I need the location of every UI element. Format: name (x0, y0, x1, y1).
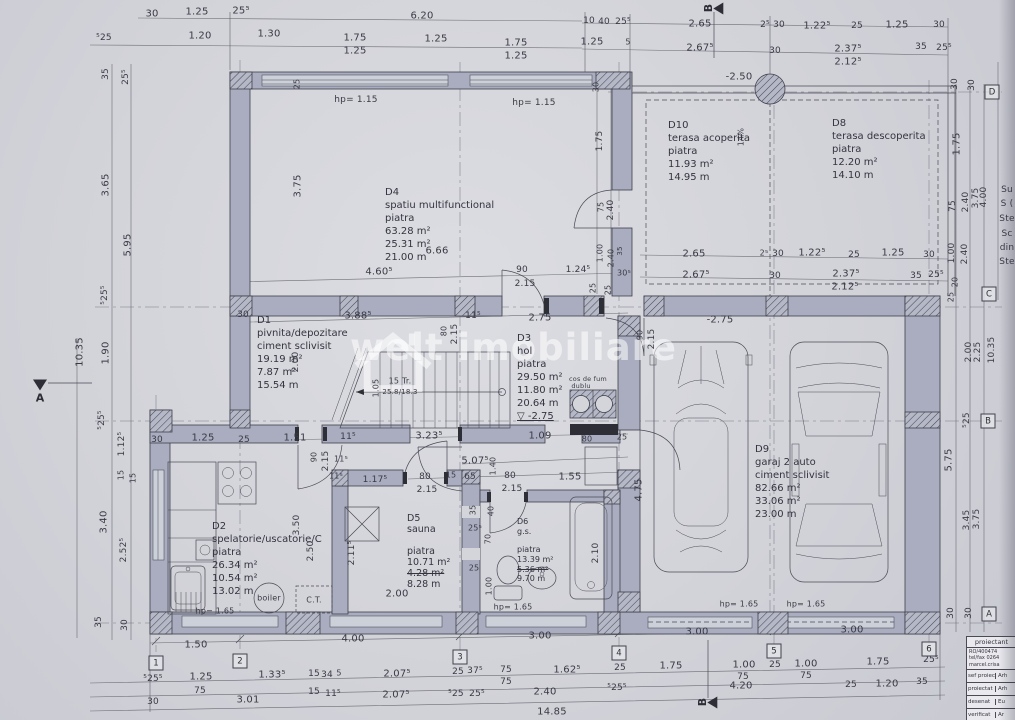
room-label-line: 25.31 m² (385, 238, 494, 251)
section-marker-triangle-icon (33, 380, 47, 391)
dim-label: 90 (310, 452, 319, 463)
room-label-line: ciment sclivisit (755, 469, 829, 482)
dim-label: 2.37⁵ (832, 269, 859, 280)
dim-label: 1.05 (372, 379, 381, 398)
dim-label: 35 (101, 68, 111, 80)
dim-label: 3.65 (101, 173, 112, 196)
dim-label: 3.45 (962, 510, 972, 531)
dim-label: 30 (964, 607, 974, 619)
dim-label: 15 (129, 473, 138, 484)
dim-label: 30 (769, 271, 781, 281)
dim-label: 25⁵ (928, 270, 944, 280)
margin-note: Ste (999, 257, 1014, 267)
dim-label: 25 (851, 21, 863, 31)
room-label-line: sauna (407, 525, 450, 536)
dim-label: 3.40 (99, 510, 110, 533)
dim-label: 3.75 (293, 174, 304, 197)
dim-label: -2.75 (707, 315, 734, 326)
room-label-line: piatra (668, 145, 750, 158)
room-label-line: 13.39 m² (517, 555, 553, 565)
margin-note: Sc (1001, 229, 1012, 239)
dim-label: 80 (504, 471, 516, 481)
dim-label: 2.15 (502, 484, 523, 494)
dim-label: 2.65 (688, 19, 711, 30)
dim-label: 1.25 (189, 672, 212, 683)
room-label-line: 63.28 m² (385, 225, 494, 238)
room-label-line: D9 (755, 443, 829, 456)
dim-label: 1.00 (947, 243, 957, 264)
dim-label: 30 (773, 20, 785, 30)
dim-label: 37⁵ (467, 666, 483, 676)
dim-label: 2.40 (607, 249, 616, 268)
dim-label: 80 (440, 326, 449, 337)
dim-label: 1.25 (424, 34, 447, 45)
dim-label: ⁵25 (96, 33, 112, 43)
dim-label: 20 (951, 277, 960, 288)
dim-label: 1.25 (580, 37, 603, 48)
dim-label: 30 (967, 79, 977, 91)
room-label-D4: D4spatiu multifunctionalpiatra63.28 m²25… (385, 186, 494, 264)
dim-label: 90 (516, 265, 528, 275)
dim-label: 35 (916, 677, 928, 687)
dim-label: hp= 1.15 (334, 95, 377, 105)
dim-label: 3.00 (685, 627, 708, 638)
room-label-line: piatra (212, 546, 322, 559)
section-marker-B: B (698, 696, 717, 709)
dim-label: 15 (446, 471, 457, 480)
dim-label: 11⁵ (325, 689, 341, 699)
dim-label: 2.40 (533, 687, 556, 698)
dim-label: 25 (617, 433, 628, 442)
dim-label: 4.00 (341, 634, 364, 645)
dim-label: 1.33⁵ (258, 670, 285, 681)
dim-label: 2.07⁵ (382, 690, 409, 701)
room-label-line: 11.93 m² (668, 158, 750, 171)
room-label-line: D8 (832, 117, 926, 130)
dim-label: 25⁵ (121, 69, 131, 85)
dim-label: 15 (117, 470, 126, 481)
title-block-row-key: verificat (967, 712, 996, 718)
grid-axis-1: 1 (149, 656, 164, 671)
room-label-line: piatra (385, 212, 494, 225)
dim-label: 2⁵ (760, 20, 770, 30)
room-label-line: 12.20 m² (832, 156, 926, 169)
dim-label: 15 Tr. (389, 377, 412, 386)
dim-label: 75 (500, 677, 512, 687)
margin-note: Su (1001, 185, 1013, 195)
room-label-line: D2 (212, 520, 322, 533)
dim-label: 1.00 (485, 577, 494, 596)
dim-label: 25 (845, 680, 857, 690)
dim-label: 2.75 (528, 313, 551, 324)
dim-label: 30 (933, 20, 945, 30)
dim-label: 15 (308, 687, 320, 697)
dim-label: 30⁵ (617, 269, 631, 278)
dim-label: 2.40 (961, 192, 971, 213)
dim-label: 25 (452, 667, 464, 677)
margin-note: din (1000, 243, 1015, 253)
grid-axis-4: 4 (612, 646, 627, 661)
dim-label: 1.75 (659, 661, 682, 672)
dim-label: 1.22⁵ (798, 248, 825, 259)
room-label-D1: D1pivnita/depozitareciment sclivisit19.1… (257, 314, 348, 392)
section-marker-triangle-icon (708, 696, 718, 708)
dim-label: 4.20 (729, 681, 752, 692)
room-label-line: pivnita/depozitare (257, 327, 348, 340)
dim-label: 1.17⁵ (363, 475, 388, 485)
dim-label: hp= 1.65 (787, 600, 826, 609)
dim-label: 2.12⁵ (834, 57, 861, 68)
dim-label: 25 (947, 292, 956, 303)
dim-label: 25⁵ (936, 43, 952, 53)
dim-label: 30 (769, 46, 781, 56)
dim-label: 75 (948, 200, 958, 212)
section-marker-A: A (33, 380, 47, 405)
dim-label: 1.40 (489, 457, 498, 476)
dim-label: 30 (592, 82, 601, 93)
dim-label: 2.40 (960, 244, 970, 265)
room-label-line: terasa descoperita (832, 130, 926, 143)
dim-label: 11⁵ (465, 311, 481, 321)
room-label-line: 13.02 m (212, 585, 322, 598)
room-label-line: 7.87 m² (257, 366, 348, 379)
grid-axis-D: D (985, 85, 1000, 100)
dim-label: 3.75 (972, 509, 982, 530)
margin-note: S ( (1001, 199, 1014, 209)
room-label-line: piatra (517, 358, 563, 371)
dim-label: 5.75 (944, 448, 955, 471)
dim-label: 2.00 (385, 589, 408, 600)
dim-label: 25 (469, 564, 480, 573)
room-label-line: 10.54 m² (212, 572, 322, 585)
dim-label: 4.60⁵ (365, 267, 392, 278)
section-marker-label: A (36, 392, 45, 405)
dim-label: 1.62⁵ (553, 665, 580, 676)
room-label-D9: D9garaj 2 autociment sclivisit82.66 m²33… (755, 443, 829, 521)
dim-label: 1.50 (184, 640, 207, 651)
dim-label: 3.88⁵ (344, 311, 371, 322)
dim-label: 10 (583, 16, 595, 26)
room-label-line: 9.70 m (517, 574, 553, 584)
dim-label: 2.40 (606, 200, 616, 221)
dim-label: -2.50 (726, 72, 753, 83)
title-block-row-key: sef proiect (967, 673, 996, 679)
dim-label: 90 (636, 330, 645, 341)
dim-label: 3.00 (528, 631, 551, 642)
dim-label: 5.07⁵ (461, 456, 488, 467)
dim-label: 75 (500, 665, 512, 675)
dim-label: 35 (910, 271, 922, 281)
title-block-row-value: Arh (996, 686, 1007, 692)
grid-axis-B: B (981, 414, 996, 429)
room-label-line: piatra (517, 545, 553, 555)
room-label-line: 26.34 m² (212, 559, 322, 572)
room-label-line: spatiu multifunctional (385, 199, 494, 212)
room-label-line: 8.28 m (407, 580, 450, 591)
dim-label: 1.25 (881, 248, 904, 259)
title-block: proiectant RO/400474 tel/fax 0264 marcel… (966, 636, 1015, 720)
room-label-line: 82.66 m² (755, 482, 829, 495)
room-label-line: ciment sclivisit (257, 340, 348, 353)
dim-label: 2.15 (647, 329, 657, 350)
title-block-row: proiectatArh (967, 683, 1015, 696)
dim-label: 2.37⁵ (834, 44, 861, 55)
room-label-D3: D3holpiatra29.50 m²11.80 m²20.64 m▽ -2.7… (517, 332, 563, 423)
dim-label: 1.22⁵ (803, 21, 830, 32)
dim-label: ⁵25 (962, 412, 972, 428)
dim-label: ⁵25⁵ (100, 285, 110, 304)
dim-label: 2.12⁵ (831, 282, 858, 293)
dim-label: 1.25 (885, 20, 908, 31)
dim-label: 30 (120, 619, 130, 631)
dim-label: 1.09 (528, 431, 551, 442)
dim-label: 30 (145, 9, 158, 20)
grid-axis-5: 5 (767, 644, 782, 659)
dim-label: 4.00 (979, 187, 989, 208)
room-label-line: 4.28 m² (407, 569, 450, 580)
room-label-line: g.s. (517, 527, 553, 537)
dim-label: 25 (589, 283, 598, 294)
room-label-line: ▽ -2.75 (517, 410, 563, 423)
dim-label: 70 (484, 534, 493, 545)
dim-label: 1.55 (558, 472, 581, 483)
dim-label: 25⁵ (469, 689, 485, 699)
dim-label: 25⁵ (923, 655, 939, 665)
dim-label: 30 (151, 435, 163, 445)
dim-label: 75 (194, 686, 206, 696)
room-label-line: D10 (668, 119, 750, 132)
dim-label: 30 (772, 249, 784, 259)
dim-label: hp= 1.65 (196, 607, 235, 616)
dim-label: 1.00 (732, 660, 755, 671)
dim-label: 10.35 (75, 337, 86, 367)
dim-label: 40 (598, 17, 610, 27)
dim-label: 1.75 (343, 33, 366, 44)
dim-label: 34 (321, 670, 333, 680)
room-label-line: D3 (517, 332, 563, 345)
room-label-line: 15.54 m (257, 379, 348, 392)
dim-label: 1.75 (866, 657, 889, 668)
dim-label: 1.30 (257, 29, 280, 40)
dim-label: 30 (237, 310, 249, 320)
dim-label: 15 (308, 669, 320, 679)
room-label-line: 19.19 m² (257, 353, 348, 366)
dim-label: 1.25 (343, 46, 366, 57)
dim-label: hp= 1.65 (494, 603, 533, 612)
dim-label: 11⁵ (329, 472, 343, 481)
dim-label: ⁵25⁵ (143, 674, 162, 684)
dim-label: 25 (604, 285, 613, 296)
room-label-D8: D8terasa descoperitapiatra12.20 m²14.10 … (832, 117, 926, 182)
dim-label: 25⁵ (232, 6, 249, 17)
dim-label: 25 (238, 435, 250, 445)
chimney-label: dublu (571, 382, 590, 390)
grid-axis-C: C (982, 287, 997, 302)
dim-label: 1.25 (191, 433, 214, 444)
dim-label: 3.23⁵ (415, 431, 442, 442)
dim-label: 80 (582, 435, 593, 444)
dim-label: 35 (616, 246, 624, 255)
dim-label: 30 (147, 697, 159, 707)
room-label-line: 14.95 m (668, 171, 750, 184)
dim-label: 1.75 (595, 131, 605, 152)
title-block-row: desenatEu (967, 696, 1015, 709)
dim-label: 1.00 (794, 659, 817, 670)
dim-label: 3.00 (840, 625, 863, 636)
dim-label: 75 (800, 671, 812, 681)
dim-label: 75 (597, 202, 606, 213)
room-label-D6: D6g.s.piatra13.39 m²5.36 m²9.70 m (517, 517, 553, 584)
margin-note: Ste (999, 214, 1014, 224)
room-label-line (517, 536, 553, 545)
dim-label: 6.20 (410, 11, 433, 22)
dim-label: 2.25 (973, 342, 983, 363)
title-block-row: sef proiectArh (967, 670, 1015, 683)
dim-label: 35 (915, 42, 927, 52)
dim-label: 2.15 (515, 279, 536, 289)
dim-label: 14.85 (537, 707, 567, 718)
room-label-line: garaj 2 auto (755, 456, 829, 469)
section-marker-triangle-icon (714, 2, 724, 14)
title-block-row-value: Arh (996, 673, 1007, 679)
room-label-line: 10.71 m² (407, 558, 450, 569)
dim-label: 1.25 (185, 7, 208, 18)
dim-label: 2.15 (450, 324, 460, 345)
title-block-row-value: Ar (996, 712, 1004, 718)
dim-label: ⁵25⁵ (607, 683, 626, 693)
room-label-D10: D10terasa acoperitapiatra11.93 m²14.95 m (668, 119, 750, 184)
dim-label: 25 (293, 79, 302, 90)
dim-label: 2.67⁵ (682, 270, 709, 281)
dim-label: 5.95 (123, 233, 134, 256)
dim-label: 5 (336, 669, 341, 678)
grid-axis-3: 3 (453, 650, 468, 665)
dim-label: 25 (769, 660, 781, 670)
dim-label: 11⁵ (340, 432, 356, 442)
dim-label: 2.11⁵ (347, 541, 357, 566)
room-label-line: terasa acoperita (668, 132, 750, 145)
dim-label: 30 (950, 78, 960, 90)
dim-label: 1.75 (952, 132, 963, 155)
room-label-line: 23.00 m (755, 508, 829, 521)
title-block-row-value: Eu (996, 699, 1005, 705)
title-block-row-key: proiectat (967, 686, 996, 692)
dim-label: 2.52⁵ (119, 538, 129, 563)
room-label-line: D1 (257, 314, 348, 327)
dim-label: 1.75 (504, 38, 527, 49)
dim-label: 1.51 (283, 433, 306, 444)
dim-label: 35 (469, 505, 478, 516)
dim-label: 2.65 (682, 249, 705, 260)
dim-label: 25⁵ (615, 17, 631, 27)
room-label-line: D4 (385, 186, 494, 199)
floor-plan-scan: .w{fill:#a9adbf;stroke:#3f3f4a;stroke-wi… (0, 0, 1015, 720)
dim-label: 25.8/18.3 (382, 388, 417, 396)
room-label-line: 20.64 m (517, 397, 563, 410)
dim-label: 25⁵ (468, 524, 482, 533)
dim-label: 10.35 (987, 337, 997, 364)
dim-label: 65 (464, 472, 476, 482)
dim-label: 2.15 (321, 451, 331, 472)
dim-label: 5 (625, 38, 630, 47)
dim-label: 1.20 (188, 31, 211, 42)
dim-label: 1.90 (101, 341, 112, 364)
grid-axis-2: 2 (233, 654, 248, 669)
dim-label: 2⁵ (760, 249, 769, 258)
section-marker-B: B (704, 2, 723, 15)
dim-label: 3.01 (236, 695, 259, 706)
section-marker-label: B (696, 698, 709, 706)
title-block-info-line: marcel.crisa (969, 662, 1014, 668)
dim-label: 25 (614, 663, 626, 673)
title-block-row-key: desenat (967, 699, 996, 705)
grid-axis-A: A (982, 607, 997, 622)
dim-label: 1.12⁵ (117, 432, 127, 457)
room-label-line: 29.50 m² (517, 371, 563, 384)
title-block-info: RO/400474 tel/fax 0264 marcel.crisa (967, 648, 1015, 670)
grid-axis-6: 6 (922, 642, 937, 657)
dim-label: 2.67⁵ (686, 43, 713, 54)
dim-label: 40 (487, 506, 496, 517)
room-label-D2: D2spelatorie/uscatorie/Cpiatra26.34 m²10… (212, 520, 322, 598)
dim-label: 1.25 (504, 51, 527, 62)
dim-label: hp= 1.15 (512, 98, 555, 108)
room-label-D5: D5saunapiatra10.71 m²4.28 m²8.28 m (407, 514, 450, 590)
title-block-rows: sef proiectArhproiectatArhdesenatEuverif… (967, 670, 1015, 720)
room-label-line: 5.36 m² (517, 565, 553, 575)
dim-label: 2.07⁵ (383, 669, 410, 680)
dim-label: hp= 1.65 (720, 600, 759, 609)
room-label-line: spelatorie/uscatorie/C (212, 533, 322, 546)
dim-label: 4.75 (634, 478, 645, 501)
dim-label: 1.24⁵ (566, 265, 591, 275)
dim-label: 2.10 (591, 543, 601, 564)
room-label-line: 33.06 m² (755, 495, 829, 508)
dim-label: 30 (923, 250, 935, 260)
section-marker-label: B (702, 4, 715, 12)
labels-layer: 301.2525⁵6.20104025⁵2.652⁵301.22⁵251.253… (0, 0, 1015, 720)
dim-label: ⁵25 (448, 689, 464, 699)
room-label-line: 11.80 m² (517, 384, 563, 397)
room-label-line: D6 (517, 517, 553, 527)
room-label-line: 21.00 m (385, 251, 494, 264)
dim-label: 80 (419, 472, 431, 482)
dim-label: 11⁵ (334, 455, 348, 464)
title-block-row: verificatAr (967, 709, 1015, 720)
dim-label: 1.00 (596, 244, 605, 263)
room-label-line: 14.10 m (832, 169, 926, 182)
dim-label: 30 (946, 607, 956, 619)
room-label-line: hol (517, 345, 563, 358)
room-label-line: piatra (832, 143, 926, 156)
title-block-header: proiectant (967, 637, 1015, 648)
dim-label: 1.20 (875, 679, 898, 690)
dim-label: 35 (94, 616, 104, 628)
dim-label: ⁵25⁵ (97, 410, 107, 429)
dim-label: 2.15 (417, 485, 438, 495)
dim-label: 25 (848, 250, 860, 260)
